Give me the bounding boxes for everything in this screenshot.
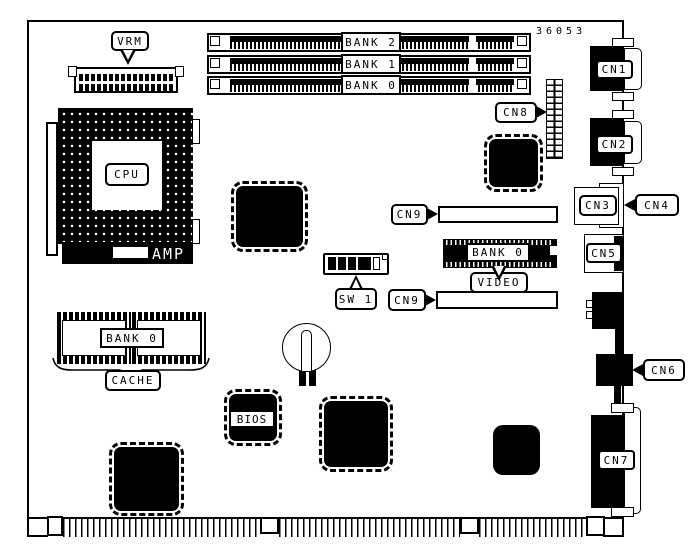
cn6-body: [596, 354, 633, 386]
chip-qfp-3: [324, 401, 388, 467]
cn5-label: CN5: [586, 243, 622, 263]
chip-qfp-2: [489, 139, 538, 187]
simm-bank0-clip-left: [210, 79, 220, 89]
cn9-bottom-slot: [436, 291, 558, 309]
edge-fingers-group-1: [63, 519, 260, 537]
cpu-socket-tab-bottom: [192, 219, 200, 244]
part-number: 36053: [536, 26, 586, 37]
audio-jack-stub: [615, 329, 624, 355]
cn1-label: CN1: [596, 60, 633, 79]
cn8-label: CN8: [495, 102, 537, 123]
simm-bank0-clip-right: [517, 79, 527, 89]
cn3-label: CN3: [579, 195, 617, 216]
cpu-zif-lever: [46, 122, 58, 256]
sw1-cell-4: [358, 257, 371, 270]
edge-fingers-group-2: [279, 519, 460, 537]
simm-bank2-clip-left: [210, 36, 220, 46]
simm-bank2-clip-right: [517, 36, 527, 46]
cn2-label: CN2: [596, 135, 633, 154]
cn6-pointer: [632, 364, 643, 376]
audio-jack-body: [592, 292, 624, 329]
vrm-pointer-inner: [123, 50, 133, 60]
chip-qfp-4: [114, 447, 179, 511]
cn2-tab-bottom: [612, 167, 634, 176]
simm-bank0-label: BANK 0: [341, 75, 401, 95]
cn8-pointer: [536, 106, 547, 118]
audio-jack-notch-1: [586, 300, 593, 308]
sw1-pointer-inner: [352, 279, 360, 288]
edge-fingers-group-3: [479, 519, 586, 537]
edge-key-1: [260, 517, 279, 534]
sw1-cell-2: [338, 257, 346, 270]
cpu-socket-tab-top: [192, 119, 200, 144]
amp-text: AMP: [152, 245, 185, 263]
sw1-cell-3: [348, 257, 356, 270]
simm-bank1-clip-right: [517, 58, 527, 68]
vrm-connector-pins: [79, 74, 173, 91]
bios-label: BIOS: [230, 411, 274, 427]
chip-qfp-1: [236, 186, 303, 247]
cn7-label: CN7: [598, 450, 635, 470]
cn6-label: CN6: [643, 359, 685, 381]
cn9-top-slot: [438, 206, 558, 223]
simm-bank1-label: BANK 1: [341, 54, 401, 74]
cn8-pin-header: [546, 79, 563, 159]
cn7-tab-bottom: [611, 507, 634, 517]
cn9-top-label: CN9: [391, 204, 428, 225]
cn4-label: CN4: [635, 194, 679, 216]
cn9-top-pointer: [427, 208, 438, 220]
simm-bank1-gap: [469, 58, 476, 71]
video-bank-label: BANK 0: [466, 243, 530, 262]
video-bank-notch: [550, 246, 557, 255]
board-bottom-right-step: [603, 519, 624, 537]
edge-tab-left: [47, 516, 63, 536]
cpu-label: CPU: [105, 163, 149, 186]
sw1-label: SW 1: [335, 288, 377, 310]
amp-bar-window: [113, 247, 148, 258]
edge-key-2: [460, 517, 479, 534]
vrm-label: VRM: [111, 31, 149, 51]
cn4-pointer: [624, 199, 635, 211]
audio-jack-notch-2: [586, 311, 593, 319]
sw1-pin1-notch: [382, 254, 388, 260]
sw1-cell-1: [328, 257, 336, 270]
simm-bank0-gap: [469, 79, 476, 92]
edge-tab-right: [586, 516, 605, 536]
cn6-stub: [614, 386, 621, 403]
chip-plain: [493, 425, 540, 475]
cn9-bottom-pointer: [425, 294, 436, 306]
simm-bank2-label: BANK 2: [341, 32, 401, 52]
cache-bank-label: BANK 0: [100, 328, 164, 348]
vrm-mount-ear-left: [68, 66, 77, 77]
simm-bank1-clip-left: [210, 58, 220, 68]
cn1-tab-bottom: [612, 92, 634, 101]
battery-clip: [301, 330, 312, 372]
motherboard-diagram: VRM BANK 2 BANK 1 BANK 0 36053 CN8 CPU A…: [0, 0, 700, 551]
cn7-tab-top: [611, 403, 634, 413]
cache-label: CACHE: [105, 370, 161, 391]
simm-bank2-gap: [469, 36, 476, 49]
board-bottom-left-step: [27, 519, 48, 537]
sw1-cell-5: [373, 257, 380, 270]
vrm-mount-ear-right: [175, 66, 184, 77]
cn9-bottom-label: CN9: [388, 289, 426, 311]
video-pointer-inner: [494, 266, 504, 276]
